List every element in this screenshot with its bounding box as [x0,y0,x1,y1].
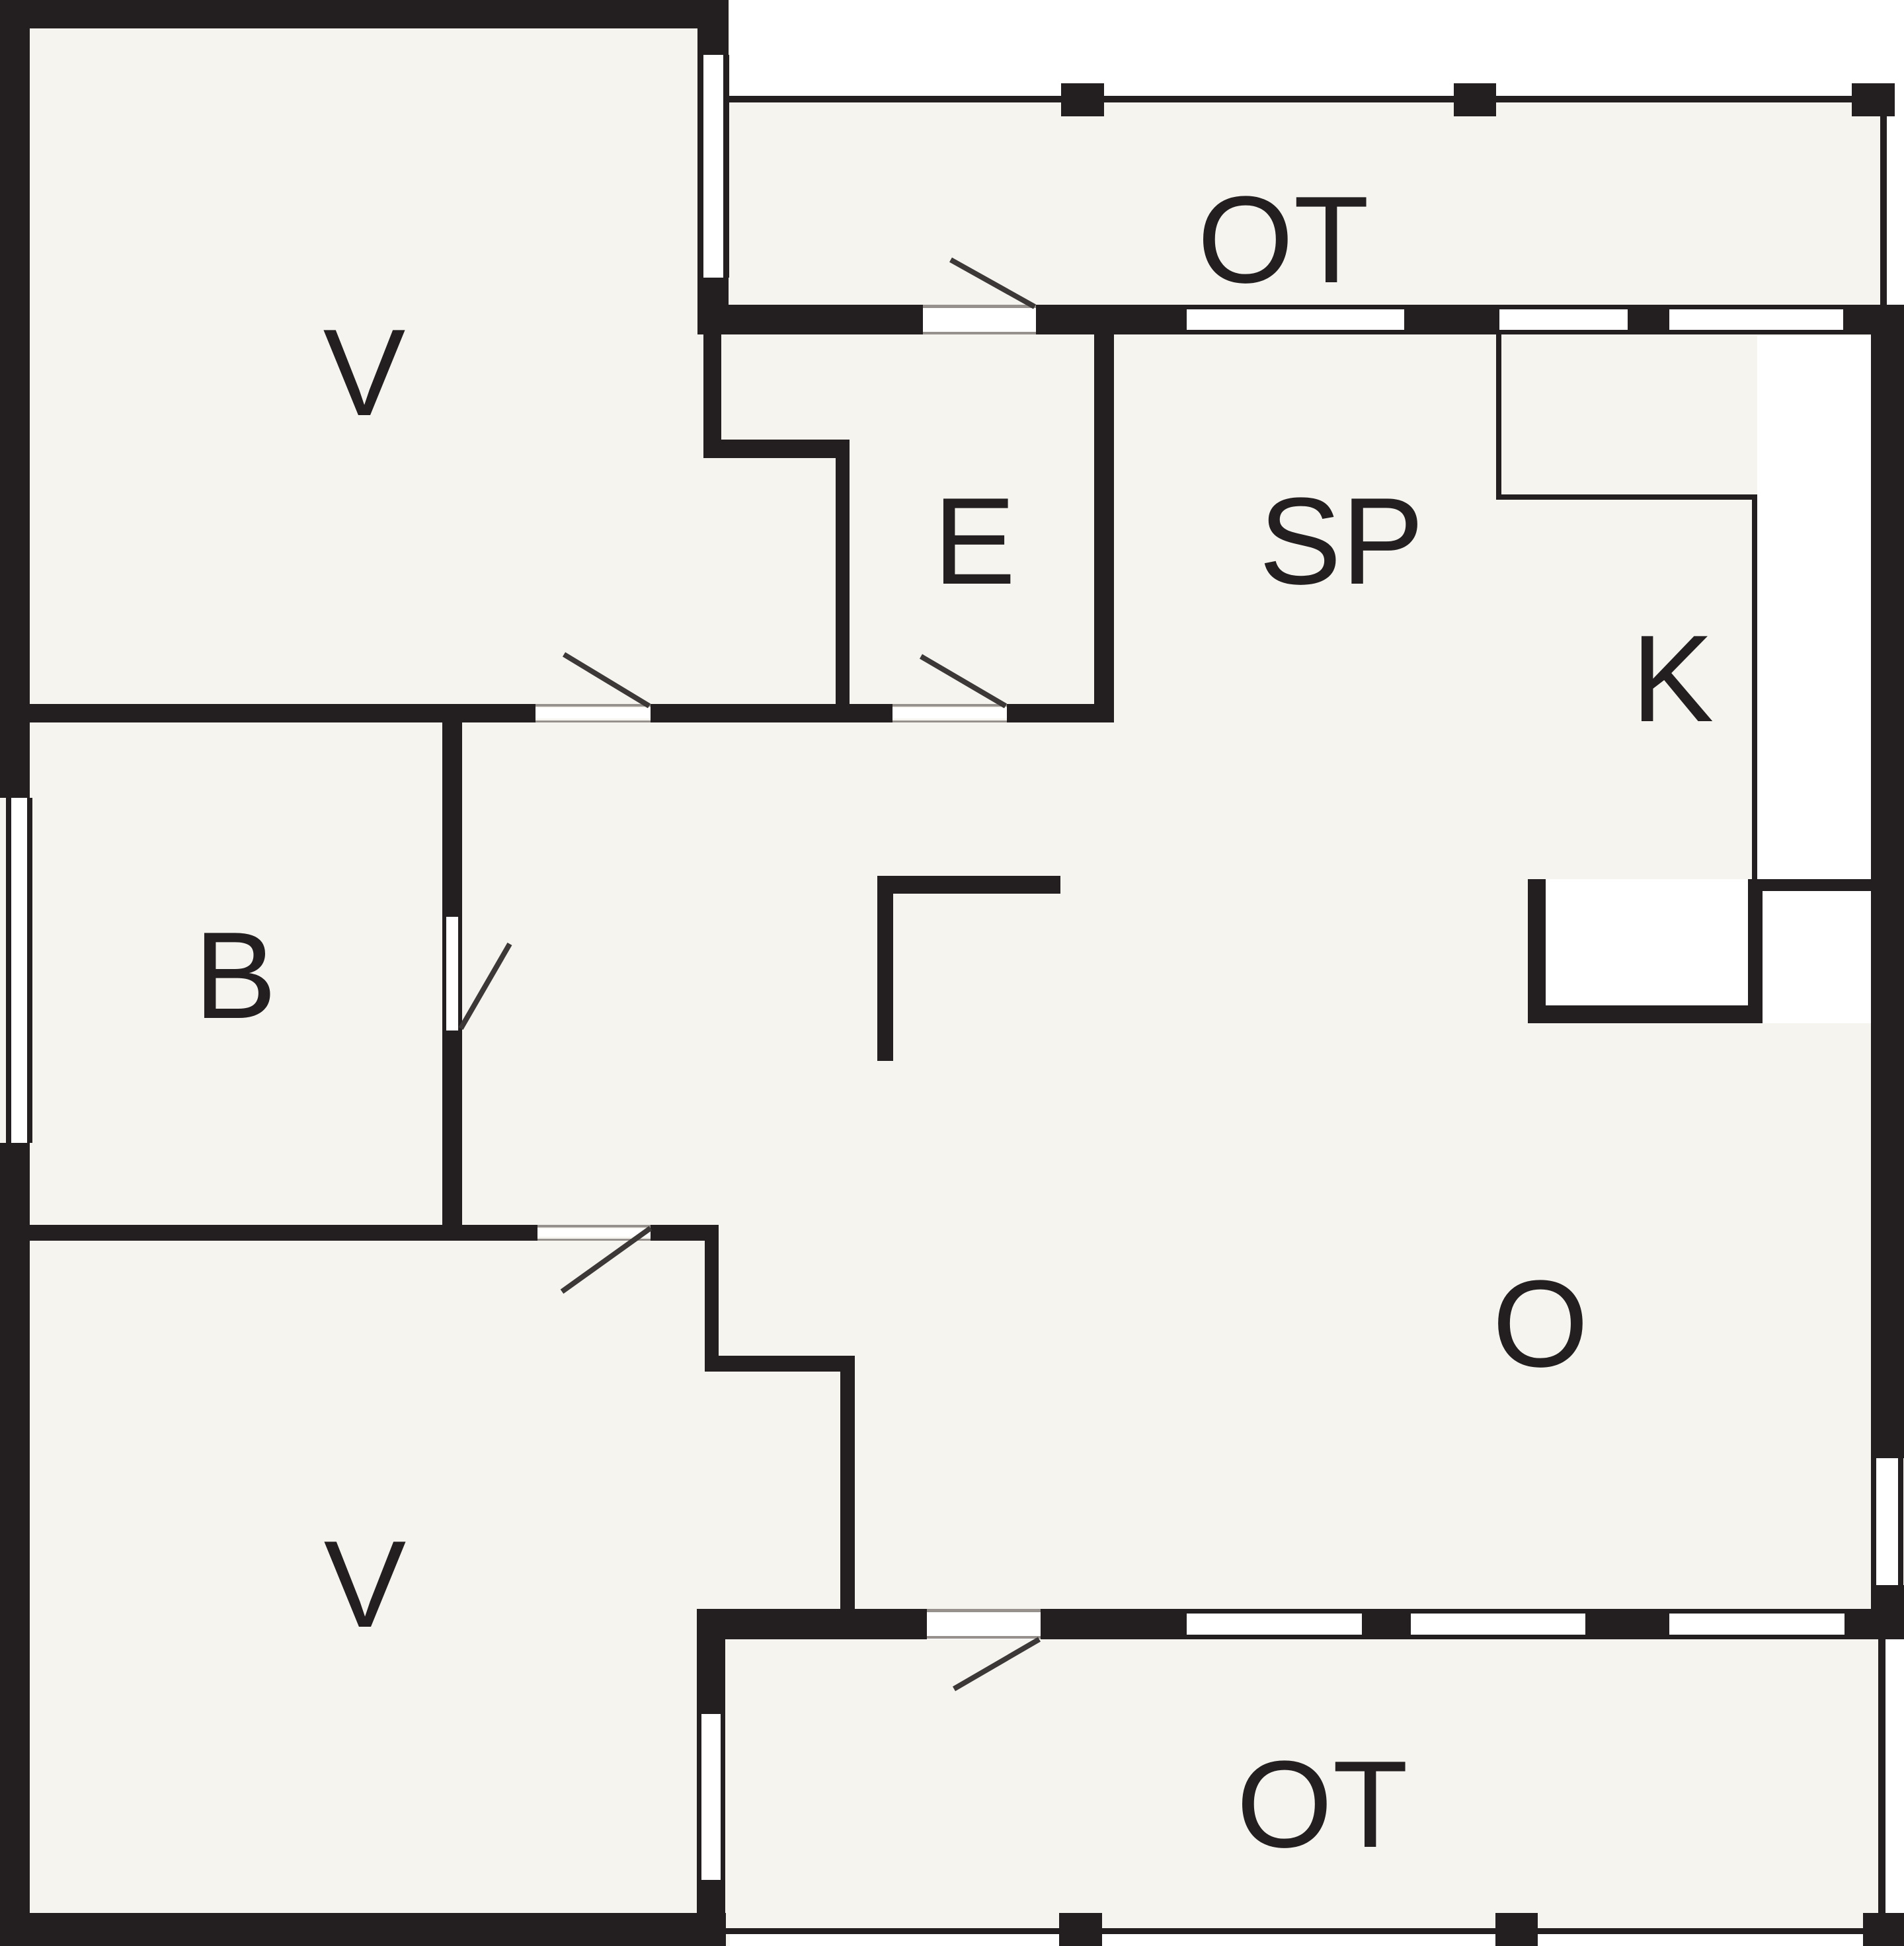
svg-text:V: V [324,1515,407,1653]
svg-text:SP: SP [1259,472,1423,610]
svg-text:OT: OT [1197,171,1369,309]
svg-text:OT: OT [1236,1735,1408,1873]
svg-text:B: B [194,906,277,1044]
svg-text:K: K [1632,609,1714,748]
svg-text:O: O [1492,1255,1588,1393]
svg-text:E: E [933,472,1016,610]
svg-text:V: V [323,303,406,442]
